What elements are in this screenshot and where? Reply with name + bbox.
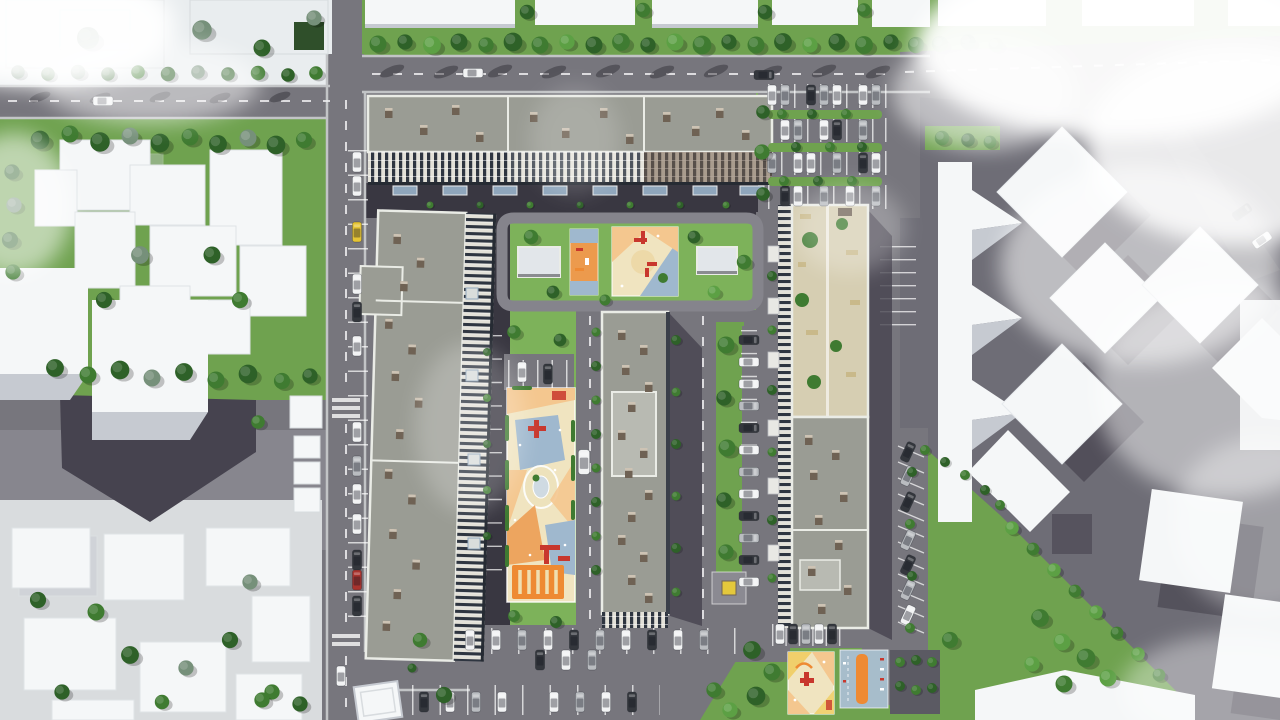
south-playground bbox=[788, 652, 834, 714]
vent-icon bbox=[640, 448, 648, 458]
canopy bbox=[768, 478, 779, 494]
vent-icon bbox=[628, 402, 636, 412]
car-icon bbox=[858, 120, 867, 140]
tower-roof bbox=[0, 268, 88, 374]
white-slab bbox=[872, 0, 930, 27]
car-icon bbox=[352, 456, 361, 476]
car-icon bbox=[352, 570, 361, 590]
vent-icon bbox=[618, 535, 626, 545]
vent-icon bbox=[818, 604, 826, 614]
car-icon bbox=[497, 692, 506, 712]
canopy bbox=[393, 186, 417, 195]
vent-icon bbox=[640, 552, 648, 562]
car-icon bbox=[827, 624, 836, 644]
car-icon bbox=[793, 120, 802, 140]
tower-roof bbox=[92, 300, 208, 412]
transformer bbox=[722, 581, 736, 595]
kiosk bbox=[290, 396, 322, 428]
cloud-center-wisp bbox=[795, 183, 905, 273]
vent-icon bbox=[810, 470, 818, 480]
canopy bbox=[768, 298, 779, 314]
car-icon bbox=[832, 85, 841, 105]
detail-dot bbox=[794, 699, 797, 702]
vent-icon bbox=[628, 512, 636, 522]
zigzag-back-slab bbox=[938, 162, 972, 522]
vent-icon bbox=[393, 234, 401, 244]
vent-icon bbox=[420, 125, 428, 135]
canopy bbox=[693, 186, 717, 195]
car-icon bbox=[621, 630, 630, 650]
vent-icon bbox=[840, 492, 848, 502]
car-icon bbox=[352, 274, 361, 294]
car-icon bbox=[352, 222, 361, 242]
cloud-center-wisp bbox=[530, 85, 620, 195]
car-icon bbox=[352, 596, 361, 616]
car-icon bbox=[569, 630, 578, 650]
tower-face bbox=[92, 412, 208, 440]
cloud-center-wisp bbox=[415, 343, 525, 513]
white-block bbox=[140, 642, 226, 712]
car-icon bbox=[739, 555, 759, 564]
entrance-pad bbox=[466, 288, 478, 299]
car-icon bbox=[832, 120, 841, 140]
vent-icon bbox=[835, 540, 843, 550]
play-structure bbox=[534, 420, 539, 438]
utility-box bbox=[712, 572, 746, 604]
play-structure bbox=[558, 556, 570, 561]
vent-icon bbox=[808, 566, 816, 576]
car-icon bbox=[463, 68, 483, 77]
car-icon bbox=[352, 514, 361, 534]
court-strip bbox=[856, 654, 868, 704]
court-patch bbox=[570, 229, 598, 243]
canopy bbox=[493, 186, 517, 195]
car-icon bbox=[575, 692, 584, 712]
vent-icon bbox=[618, 430, 626, 440]
vent-icon bbox=[645, 490, 653, 500]
white-block bbox=[12, 528, 90, 588]
car-icon bbox=[739, 467, 759, 476]
car-icon bbox=[801, 624, 810, 644]
vent-icon bbox=[844, 585, 852, 595]
van-icon bbox=[578, 450, 590, 475]
car-icon bbox=[352, 484, 361, 504]
car-icon bbox=[465, 630, 474, 650]
car-icon bbox=[517, 630, 526, 650]
car-icon bbox=[601, 692, 610, 712]
car-icon bbox=[535, 650, 544, 670]
car-icon bbox=[491, 630, 500, 650]
vent-icon bbox=[408, 494, 416, 504]
car-icon bbox=[754, 70, 774, 79]
vent-icon bbox=[663, 112, 671, 122]
site-plan-render bbox=[0, 0, 1280, 720]
vent-icon bbox=[393, 589, 401, 599]
car-icon bbox=[352, 422, 361, 442]
cube-shadow bbox=[1052, 514, 1092, 554]
play-structure bbox=[540, 545, 560, 550]
car-icon bbox=[793, 186, 802, 206]
car-icon bbox=[780, 186, 789, 206]
slab-shade bbox=[365, 24, 515, 28]
equipment bbox=[585, 258, 589, 265]
vent-icon bbox=[385, 108, 393, 118]
white-slab bbox=[772, 0, 858, 25]
car-icon bbox=[819, 120, 828, 140]
car-icon bbox=[739, 379, 759, 388]
vent-icon bbox=[385, 319, 393, 329]
vent-icon bbox=[645, 382, 653, 392]
car-icon bbox=[739, 357, 759, 366]
vent-icon bbox=[408, 344, 416, 354]
roof bbox=[792, 417, 868, 628]
car-icon bbox=[419, 692, 428, 712]
car-icon bbox=[543, 364, 552, 384]
vent-icon bbox=[389, 529, 397, 539]
white-block bbox=[52, 700, 134, 720]
car-icon bbox=[739, 533, 759, 542]
car-icon bbox=[517, 362, 526, 382]
detail-dot bbox=[657, 235, 660, 238]
vent-icon bbox=[625, 468, 633, 478]
car-icon bbox=[788, 624, 797, 644]
canopy bbox=[768, 545, 779, 561]
facade-brown-tint bbox=[644, 152, 772, 185]
white-block bbox=[252, 596, 310, 662]
car-icon bbox=[352, 336, 361, 356]
car-icon bbox=[352, 550, 361, 570]
vent-icon bbox=[692, 126, 700, 136]
car-icon bbox=[871, 153, 880, 173]
car-icon bbox=[871, 85, 880, 105]
court-patch bbox=[570, 281, 598, 295]
car-icon bbox=[543, 630, 552, 650]
car-icon bbox=[699, 630, 708, 650]
vent-icon bbox=[417, 258, 425, 268]
south-facade bbox=[602, 612, 668, 628]
car-icon bbox=[673, 630, 682, 650]
car-icon bbox=[595, 630, 604, 650]
white-block bbox=[104, 534, 184, 600]
vent-icon bbox=[476, 132, 484, 142]
play-structure bbox=[634, 238, 647, 242]
vent-icon bbox=[391, 371, 399, 381]
white-slab bbox=[365, 0, 515, 27]
play-structure bbox=[641, 231, 645, 244]
entrance-pad bbox=[468, 538, 480, 549]
car-icon bbox=[793, 153, 802, 173]
car-icon bbox=[471, 692, 480, 712]
terrace-tree bbox=[807, 375, 821, 389]
vent-icon bbox=[645, 593, 653, 603]
car-icon bbox=[739, 577, 759, 586]
vent-icon bbox=[400, 281, 408, 291]
white-block bbox=[24, 618, 116, 690]
equipment bbox=[826, 700, 832, 710]
playground-tree bbox=[658, 273, 668, 283]
roof-annex bbox=[359, 266, 402, 315]
car-icon bbox=[352, 302, 361, 322]
vent-icon bbox=[618, 330, 626, 340]
middle-apartment-slab bbox=[602, 312, 702, 628]
vent-icon bbox=[452, 105, 460, 115]
play-structure bbox=[645, 268, 649, 277]
terrace-tree bbox=[795, 293, 809, 307]
kiosk-shade bbox=[518, 274, 560, 277]
vent-icon bbox=[626, 134, 634, 144]
east-facade-edge bbox=[666, 312, 670, 614]
car-icon bbox=[858, 153, 867, 173]
car-icon bbox=[352, 176, 361, 196]
vent-icon bbox=[815, 515, 823, 525]
car-icon bbox=[627, 692, 636, 712]
car-icon bbox=[780, 85, 789, 105]
car-icon bbox=[767, 85, 776, 105]
detail-dot bbox=[823, 661, 826, 664]
south-sports-court bbox=[840, 650, 888, 708]
vent-icon bbox=[383, 621, 391, 631]
vent-icon bbox=[832, 450, 840, 460]
kiosk bbox=[294, 488, 320, 512]
cast-shadow bbox=[670, 314, 702, 626]
canopy bbox=[643, 186, 667, 195]
canopy bbox=[443, 186, 467, 195]
south-kiosk bbox=[354, 681, 403, 720]
vent-icon bbox=[628, 575, 636, 585]
canopy bbox=[768, 352, 779, 368]
north-playground bbox=[612, 227, 678, 296]
play-structure bbox=[804, 672, 809, 686]
roadside-kiosks bbox=[290, 396, 322, 512]
car-icon bbox=[739, 489, 759, 498]
terrace-tree bbox=[830, 340, 842, 352]
white-slab bbox=[652, 0, 758, 27]
vent-icon bbox=[716, 108, 724, 118]
car-icon bbox=[587, 650, 596, 670]
south-strip-cars bbox=[775, 624, 836, 644]
car-icon bbox=[647, 630, 656, 650]
car-icon bbox=[549, 692, 558, 712]
car-icon bbox=[739, 335, 759, 344]
kiosk bbox=[294, 462, 320, 484]
kiosk bbox=[697, 247, 737, 274]
roof-inset bbox=[800, 560, 840, 590]
canopy bbox=[768, 420, 779, 436]
car-icon bbox=[739, 445, 759, 454]
play-structure bbox=[544, 550, 549, 564]
equipment bbox=[575, 268, 584, 271]
detail-dot bbox=[621, 285, 624, 288]
car-icon bbox=[336, 666, 345, 686]
vent-icon bbox=[805, 435, 813, 445]
car-icon bbox=[858, 85, 867, 105]
vent-icon bbox=[742, 130, 750, 140]
vent-icon bbox=[622, 365, 630, 375]
cloud-top-right-wisp bbox=[893, 34, 1077, 150]
equipment bbox=[576, 248, 583, 251]
vent-icon bbox=[640, 345, 648, 355]
car-icon bbox=[739, 511, 759, 520]
kiosk bbox=[294, 436, 320, 458]
cast-shadow bbox=[868, 210, 892, 640]
play-structure bbox=[647, 262, 657, 266]
car-icon bbox=[819, 85, 828, 105]
car-icon bbox=[780, 120, 789, 140]
vent-icon bbox=[385, 469, 393, 479]
car-icon bbox=[739, 401, 759, 410]
equipment bbox=[552, 391, 566, 400]
kiosk-shade bbox=[697, 271, 737, 274]
car-icon bbox=[832, 153, 841, 173]
car-icon bbox=[814, 624, 823, 644]
east-apartment-slab bbox=[768, 205, 892, 640]
aerial-render-viewport bbox=[0, 0, 1280, 720]
north-strip-court bbox=[570, 229, 598, 295]
canopy bbox=[768, 246, 779, 262]
car-icon bbox=[806, 85, 815, 105]
car-icon bbox=[806, 153, 815, 173]
white-block bbox=[130, 165, 205, 225]
playground-tree bbox=[533, 475, 540, 482]
slab-shade bbox=[652, 24, 758, 28]
car-icon bbox=[561, 650, 570, 670]
car-icon bbox=[352, 152, 361, 172]
car-icon bbox=[739, 423, 759, 432]
vent-icon bbox=[396, 429, 404, 439]
kiosk bbox=[518, 247, 560, 277]
vent-icon bbox=[412, 560, 420, 570]
cloud-top-left-wisp bbox=[40, 40, 260, 124]
white-slab bbox=[535, 0, 635, 25]
car-icon bbox=[775, 624, 784, 644]
